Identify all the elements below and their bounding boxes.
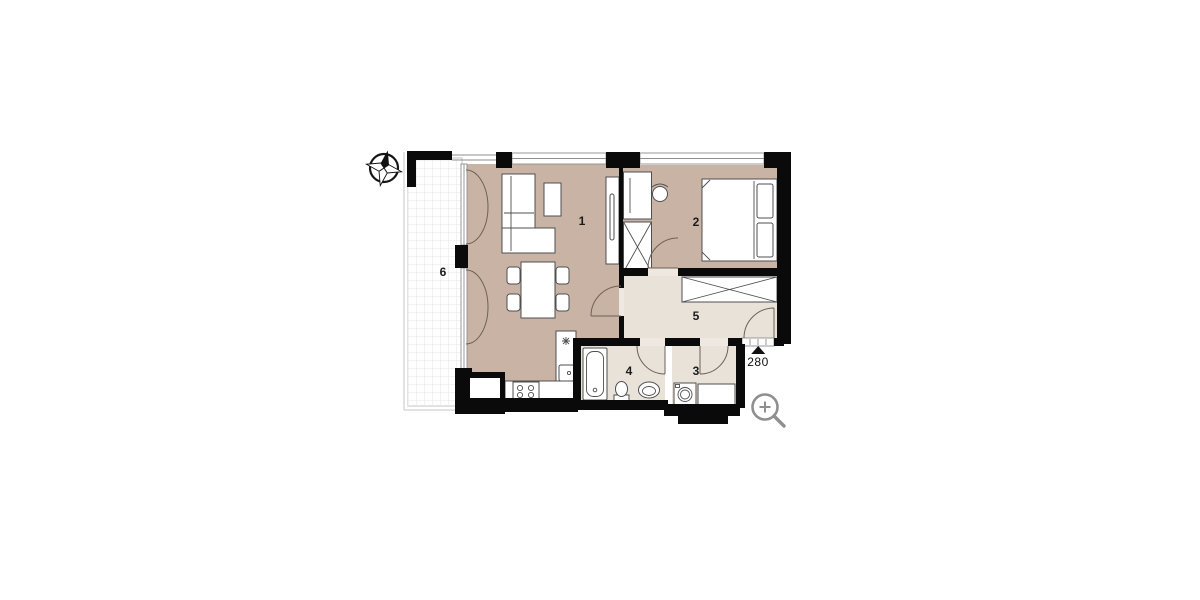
utility-counter <box>698 384 735 406</box>
toilet <box>614 382 629 403</box>
floor-plan-drawing <box>0 0 1200 600</box>
bathroom-sink <box>639 382 660 398</box>
bedroom-wardrobe <box>624 222 652 272</box>
boiler-symbol-icon <box>562 337 570 345</box>
entrance-elevation-label: 280 <box>747 355 769 369</box>
tv-sideboard <box>606 177 619 264</box>
kitchen-sink <box>559 365 574 381</box>
room-label-6: 6 <box>440 266 447 278</box>
entrance-arrow-icon <box>751 346 765 354</box>
room-label-4: 4 <box>626 365 633 377</box>
entrance-marker: 280 <box>747 346 769 369</box>
room-label-5: 5 <box>693 310 700 322</box>
washing-machine <box>674 383 696 406</box>
coffee-table <box>544 183 561 216</box>
bathtub <box>583 348 607 400</box>
desk <box>624 172 652 219</box>
hallway-wardrobe <box>682 277 777 302</box>
compass-icon <box>364 148 404 188</box>
double-bed <box>702 179 777 261</box>
room-label-2: 2 <box>693 216 700 228</box>
room-label-1: 1 <box>579 215 586 227</box>
floor-plan-canvas: 1 2 3 4 5 6 280 <box>0 0 1200 600</box>
stove <box>513 382 539 400</box>
room-label-3: 3 <box>693 365 700 377</box>
zoom-in-icon[interactable] <box>744 388 792 436</box>
